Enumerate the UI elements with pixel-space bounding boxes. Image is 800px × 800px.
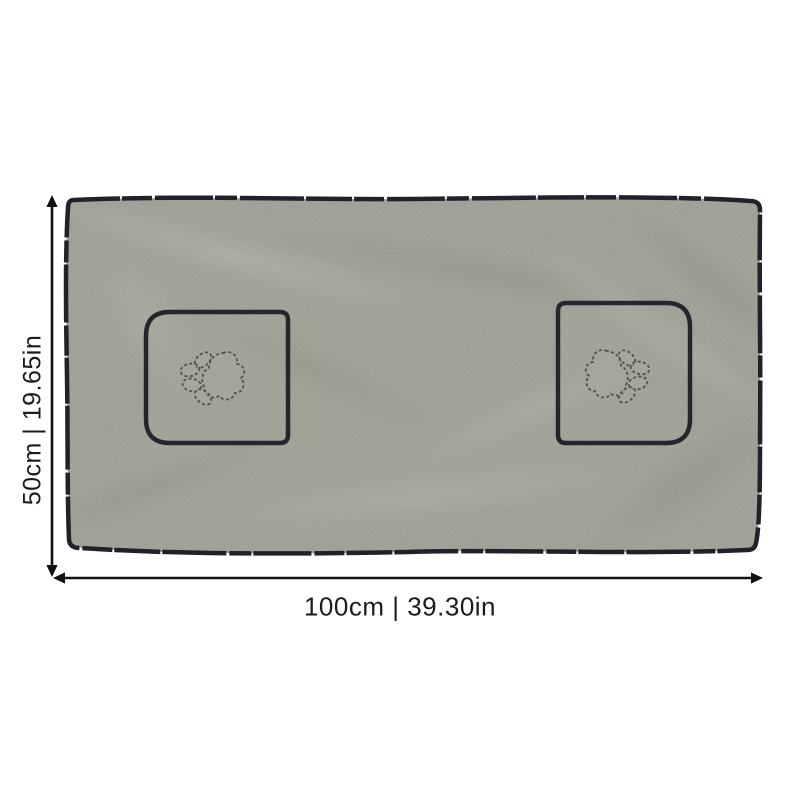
arrowhead-right — [751, 572, 763, 583]
towel-pocket-left — [146, 312, 288, 443]
width-dimension-arrow — [52, 570, 764, 586]
towel-pocket-right — [558, 303, 690, 443]
arrowhead-left — [53, 572, 65, 583]
height-dimension-label: 50cm | 19.65in — [19, 335, 48, 506]
arrowhead-up — [46, 195, 57, 207]
towel-photo — [58, 192, 766, 558]
width-dimension-label: 100cm | 39.30in — [304, 592, 496, 623]
product-dimension-figure: 50cm | 19.65in 100cm | 39.30in — [0, 0, 800, 800]
